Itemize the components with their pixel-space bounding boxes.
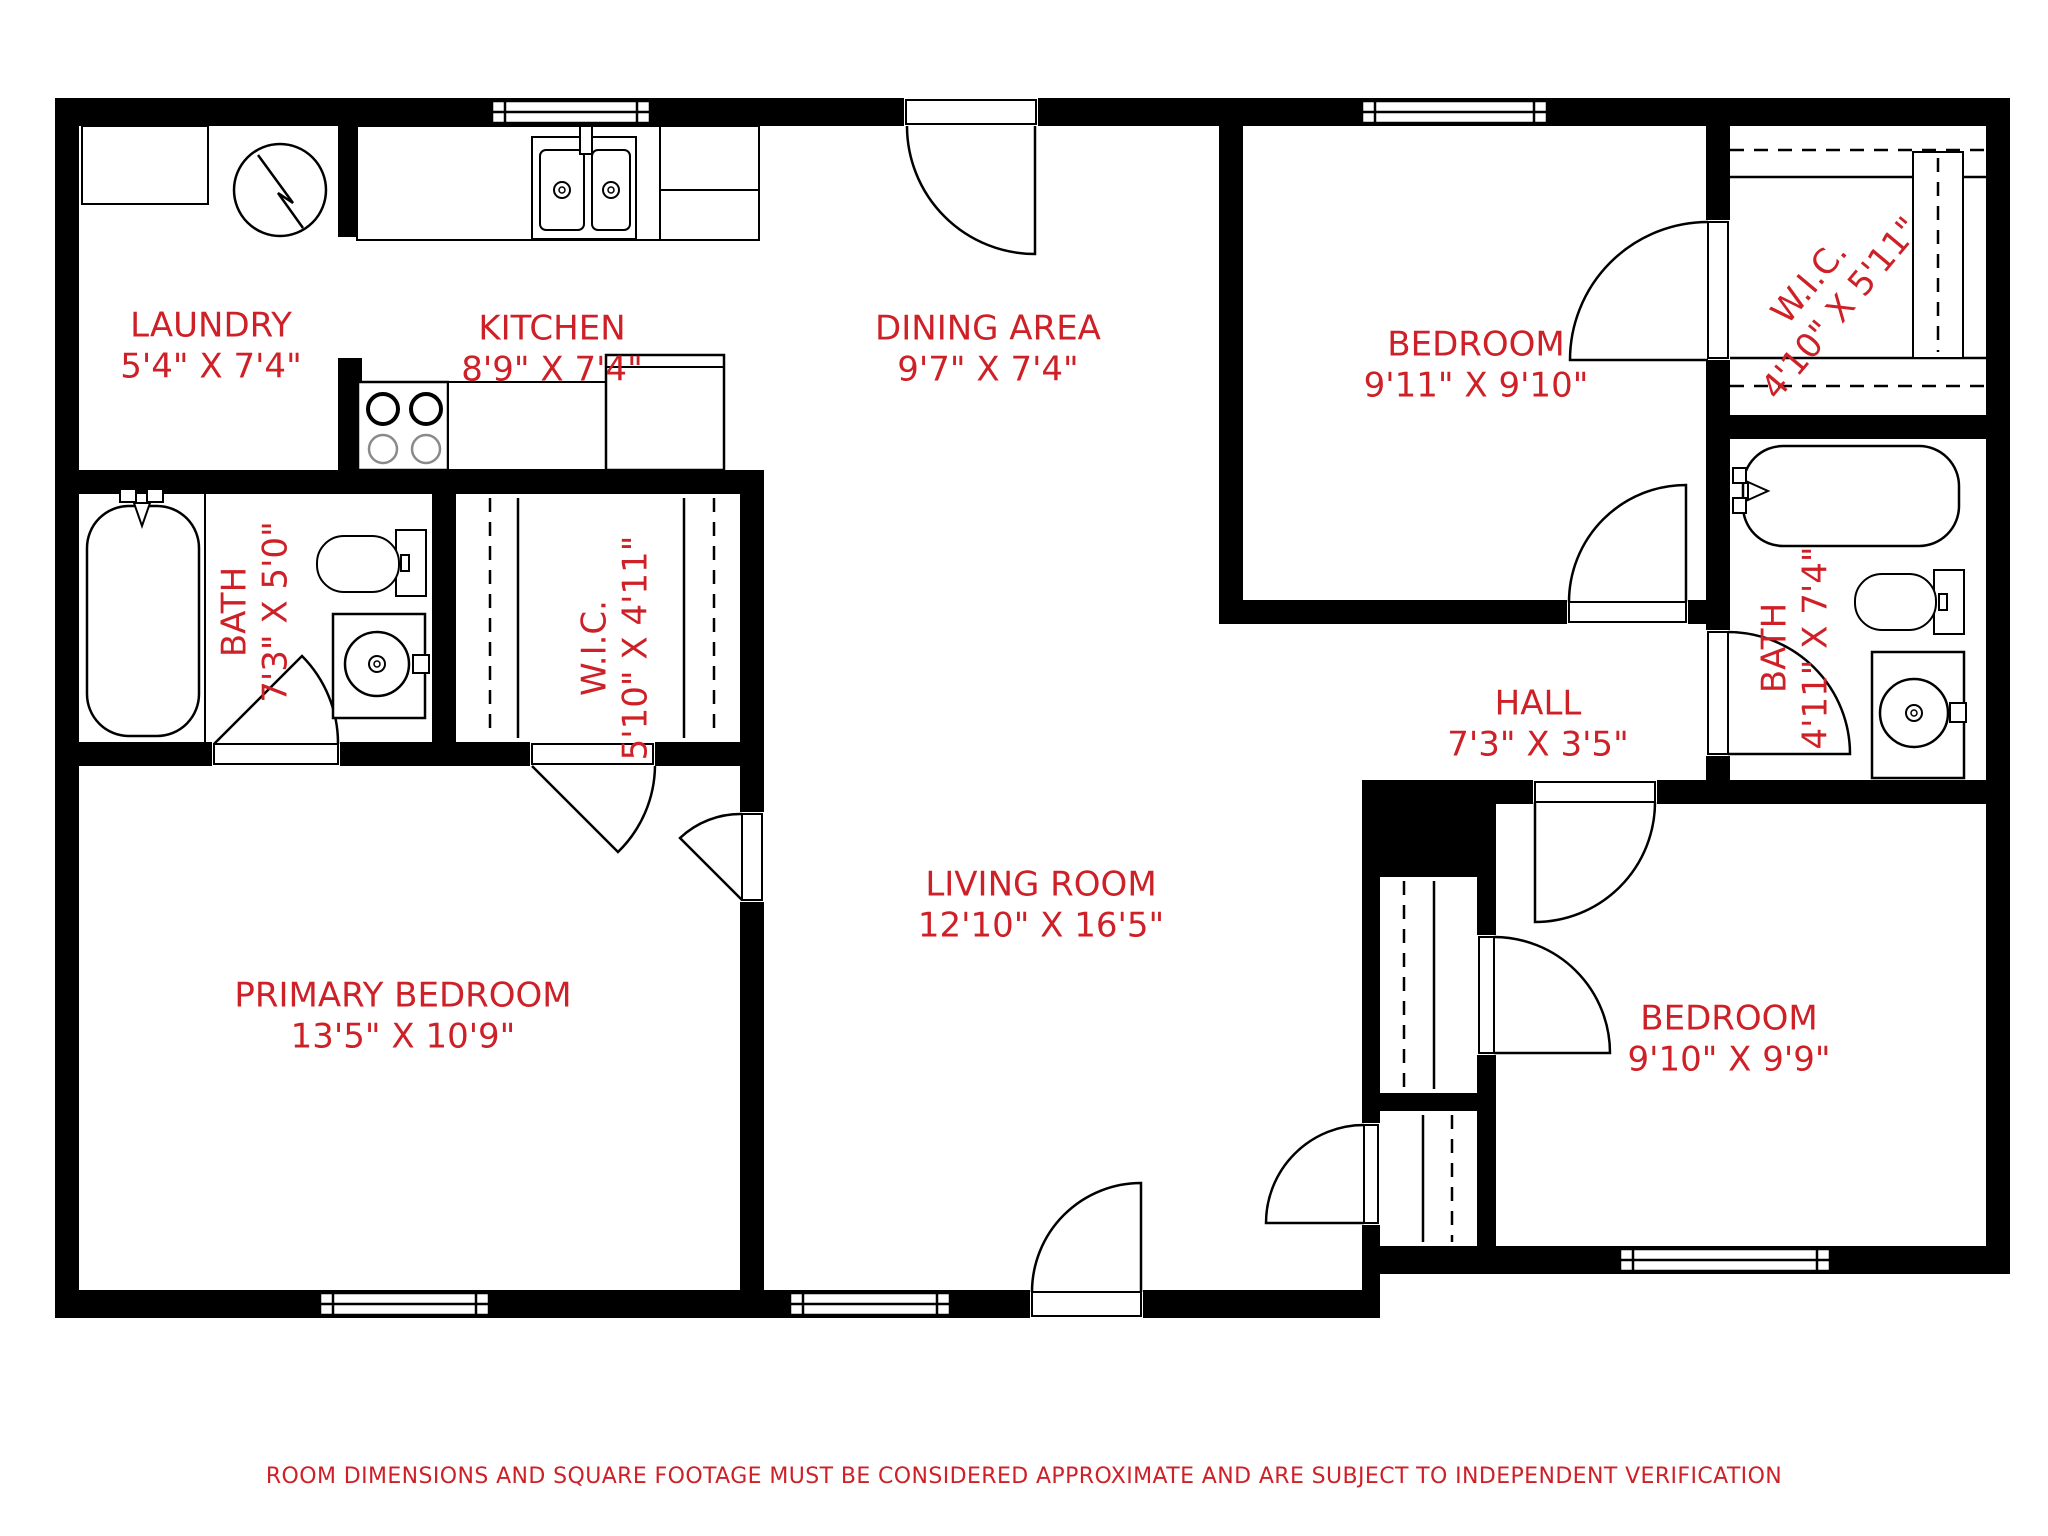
disclaimer-text: ROOM DIMENSIONS AND SQUARE FOOTAGE MUST … — [0, 1464, 2048, 1489]
floorplan-canvas: LAUNDRY 5'4" X 7'4" KITCHEN 8'9" X 7'4" … — [0, 0, 2048, 1536]
door-living-exterior — [1030, 1183, 1143, 1318]
room-label-primary-bedroom: PRIMARY BEDROOM 13'5" X 10'9" — [234, 976, 571, 1059]
wall-bedroom-wic-east-3 — [1706, 756, 1730, 780]
wall-bath-wic-divider — [432, 494, 456, 742]
room-name: DINING AREA — [875, 309, 1101, 350]
kitchen-counter-bottom — [448, 382, 606, 470]
wall-left — [55, 98, 79, 1318]
room-name: BEDROOM — [1364, 325, 1589, 366]
room-label-hall: HALL 7'3" X 3'5" — [1447, 684, 1628, 767]
bathtub-left-icon — [87, 489, 205, 742]
room-label-bedroom-bottom-right: BEDROOM 9'10" X 9'9" — [1627, 999, 1830, 1082]
room-label-bath-right: BATH 4'11" X 7'4" — [1755, 546, 1838, 749]
wall-kitchen-south — [79, 470, 764, 494]
wall-bedroom-wic-east-2 — [1706, 360, 1730, 630]
room-name: PRIMARY BEDROOM — [234, 976, 571, 1017]
wall-bath-south-2 — [340, 742, 530, 766]
wall-bedroom-wic-east-1 — [1706, 126, 1730, 220]
door-primary-bedroom — [680, 812, 764, 902]
wall-bottom-left — [55, 1290, 1380, 1318]
room-name: BATH — [1755, 546, 1796, 749]
wall-wic-south — [655, 742, 764, 766]
toilet-left-icon — [317, 530, 426, 596]
room-label-kitchen: KITCHEN 8'9" X 7'4" — [461, 309, 642, 392]
laundry-counter — [82, 126, 208, 204]
wall-bedroomtr-south-1 — [1219, 600, 1567, 624]
wall-dining-bedroom — [1219, 126, 1243, 600]
window-kitchen — [492, 101, 650, 123]
floorplan-drawing — [0, 0, 2048, 1536]
room-dims: 13'5" X 10'9" — [234, 1017, 571, 1058]
room-dims: 9'10" X 9'9" — [1627, 1040, 1830, 1081]
wall-living-west-lower — [740, 902, 764, 1290]
wall-closet-west-1 — [1362, 877, 1380, 1123]
room-dims: 4'11" X 7'4" — [1796, 546, 1837, 749]
window-living-room — [790, 1293, 950, 1315]
room-dims: 8'9" X 7'4" — [461, 350, 642, 391]
wall-closet-east-2 — [1477, 1055, 1496, 1246]
room-dims: 9'7" X 7'4" — [875, 350, 1101, 391]
kitchen-sink-icon — [532, 126, 636, 239]
wall-hall-south-2 — [1657, 780, 1986, 804]
room-label-living-room: LIVING ROOM 12'10" X 16'5" — [918, 865, 1164, 948]
door-closet-upper — [1477, 935, 1610, 1055]
room-name: BATH — [215, 521, 256, 702]
room-name: LIVING ROOM — [918, 865, 1164, 906]
closet-bottom-right-shelves — [1404, 881, 1452, 1242]
door-closet-lower — [1266, 1123, 1380, 1225]
room-name: HALL — [1447, 684, 1628, 725]
wall-right — [1986, 98, 2010, 1274]
washing-machine-icon — [234, 144, 326, 236]
window-bedroom-bottom-right — [1620, 1249, 1830, 1271]
wall-closet-divider — [1362, 1093, 1496, 1111]
room-label-wic-left: W.I.C. 5'10" X 4'11" — [575, 536, 658, 761]
room-label-laundry: LAUNDRY 5'4" X 7'4" — [120, 306, 301, 389]
room-dims: 7'3" X 3'5" — [1447, 725, 1628, 766]
room-label-bath-left: BATH 7'3" X 5'0" — [215, 521, 298, 702]
wall-wic-bath-right-divider — [1730, 415, 1986, 439]
room-name: W.I.C. — [575, 536, 616, 761]
wall-closet-west-2 — [1362, 1225, 1380, 1246]
wall-closet-block — [1362, 804, 1496, 877]
room-label-bedroom-top-right: BEDROOM 9'11" X 9'10" — [1364, 325, 1589, 408]
room-dims: 9'11" X 9'10" — [1364, 366, 1589, 407]
room-dims: 7'3" X 5'0" — [256, 521, 297, 702]
entry-door — [904, 98, 1038, 254]
window-primary-bedroom — [320, 1293, 489, 1315]
room-label-dining-area: DINING AREA 9'7" X 7'4" — [875, 309, 1101, 392]
room-name: KITCHEN — [461, 309, 642, 350]
room-dims: 12'10" X 16'5" — [918, 906, 1164, 947]
door-wic-top-right — [1570, 220, 1730, 360]
door-bedroom-top-right — [1567, 485, 1688, 624]
window-bedroom-top-right — [1362, 101, 1547, 123]
bathtub-right-icon — [1733, 446, 1959, 546]
room-name: LAUNDRY — [120, 306, 301, 347]
wall-step — [1362, 1246, 1380, 1318]
wall-hall-south-1 — [1362, 780, 1533, 804]
vanity-sink-right-icon — [1872, 652, 1966, 778]
room-name: BEDROOM — [1627, 999, 1830, 1040]
room-dims: 5'10" X 4'11" — [616, 536, 657, 761]
range-stove-icon — [358, 382, 448, 470]
room-dims: 5'4" X 7'4" — [120, 347, 301, 388]
door-bedroom-bottom-right — [1533, 780, 1657, 922]
vanity-sink-left-icon — [333, 614, 429, 718]
wall-closet-east-1 — [1477, 877, 1496, 935]
toilet-right-icon — [1855, 570, 1964, 634]
wall-bath-south-1 — [79, 742, 212, 766]
